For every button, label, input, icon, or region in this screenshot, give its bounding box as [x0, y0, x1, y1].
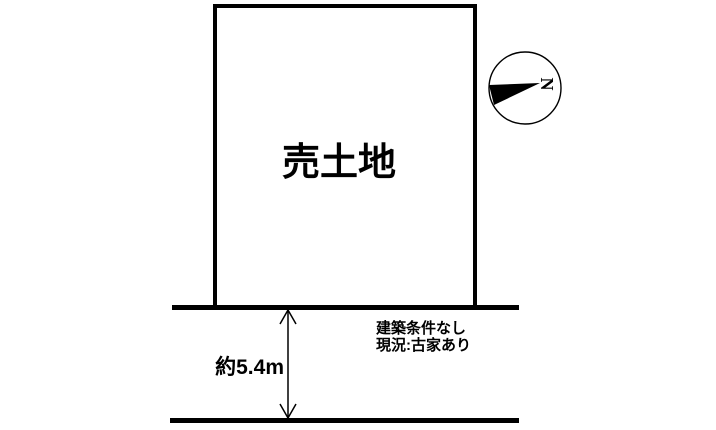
- compass-needle: [489, 83, 540, 105]
- road-width-label: 約5.4m: [200, 351, 284, 381]
- notes-text: 建築条件なし 現況:古家あり: [376, 320, 471, 354]
- notes-line-current-status: 現況:古家あり: [376, 337, 471, 354]
- road-edge-lower: [170, 418, 519, 423]
- notes-line-building-conditions: 建築条件なし: [376, 320, 471, 337]
- site-plan-canvas: 売土地 N 約5.4m 建築条件なし 現況:古家あり: [0, 0, 716, 430]
- compass-north-label: N: [537, 78, 557, 91]
- plot-boundary: 売土地: [213, 4, 477, 309]
- north-compass-icon: N: [486, 50, 566, 130]
- road-edge-upper: [172, 305, 519, 310]
- plot-label: 売土地: [282, 131, 396, 186]
